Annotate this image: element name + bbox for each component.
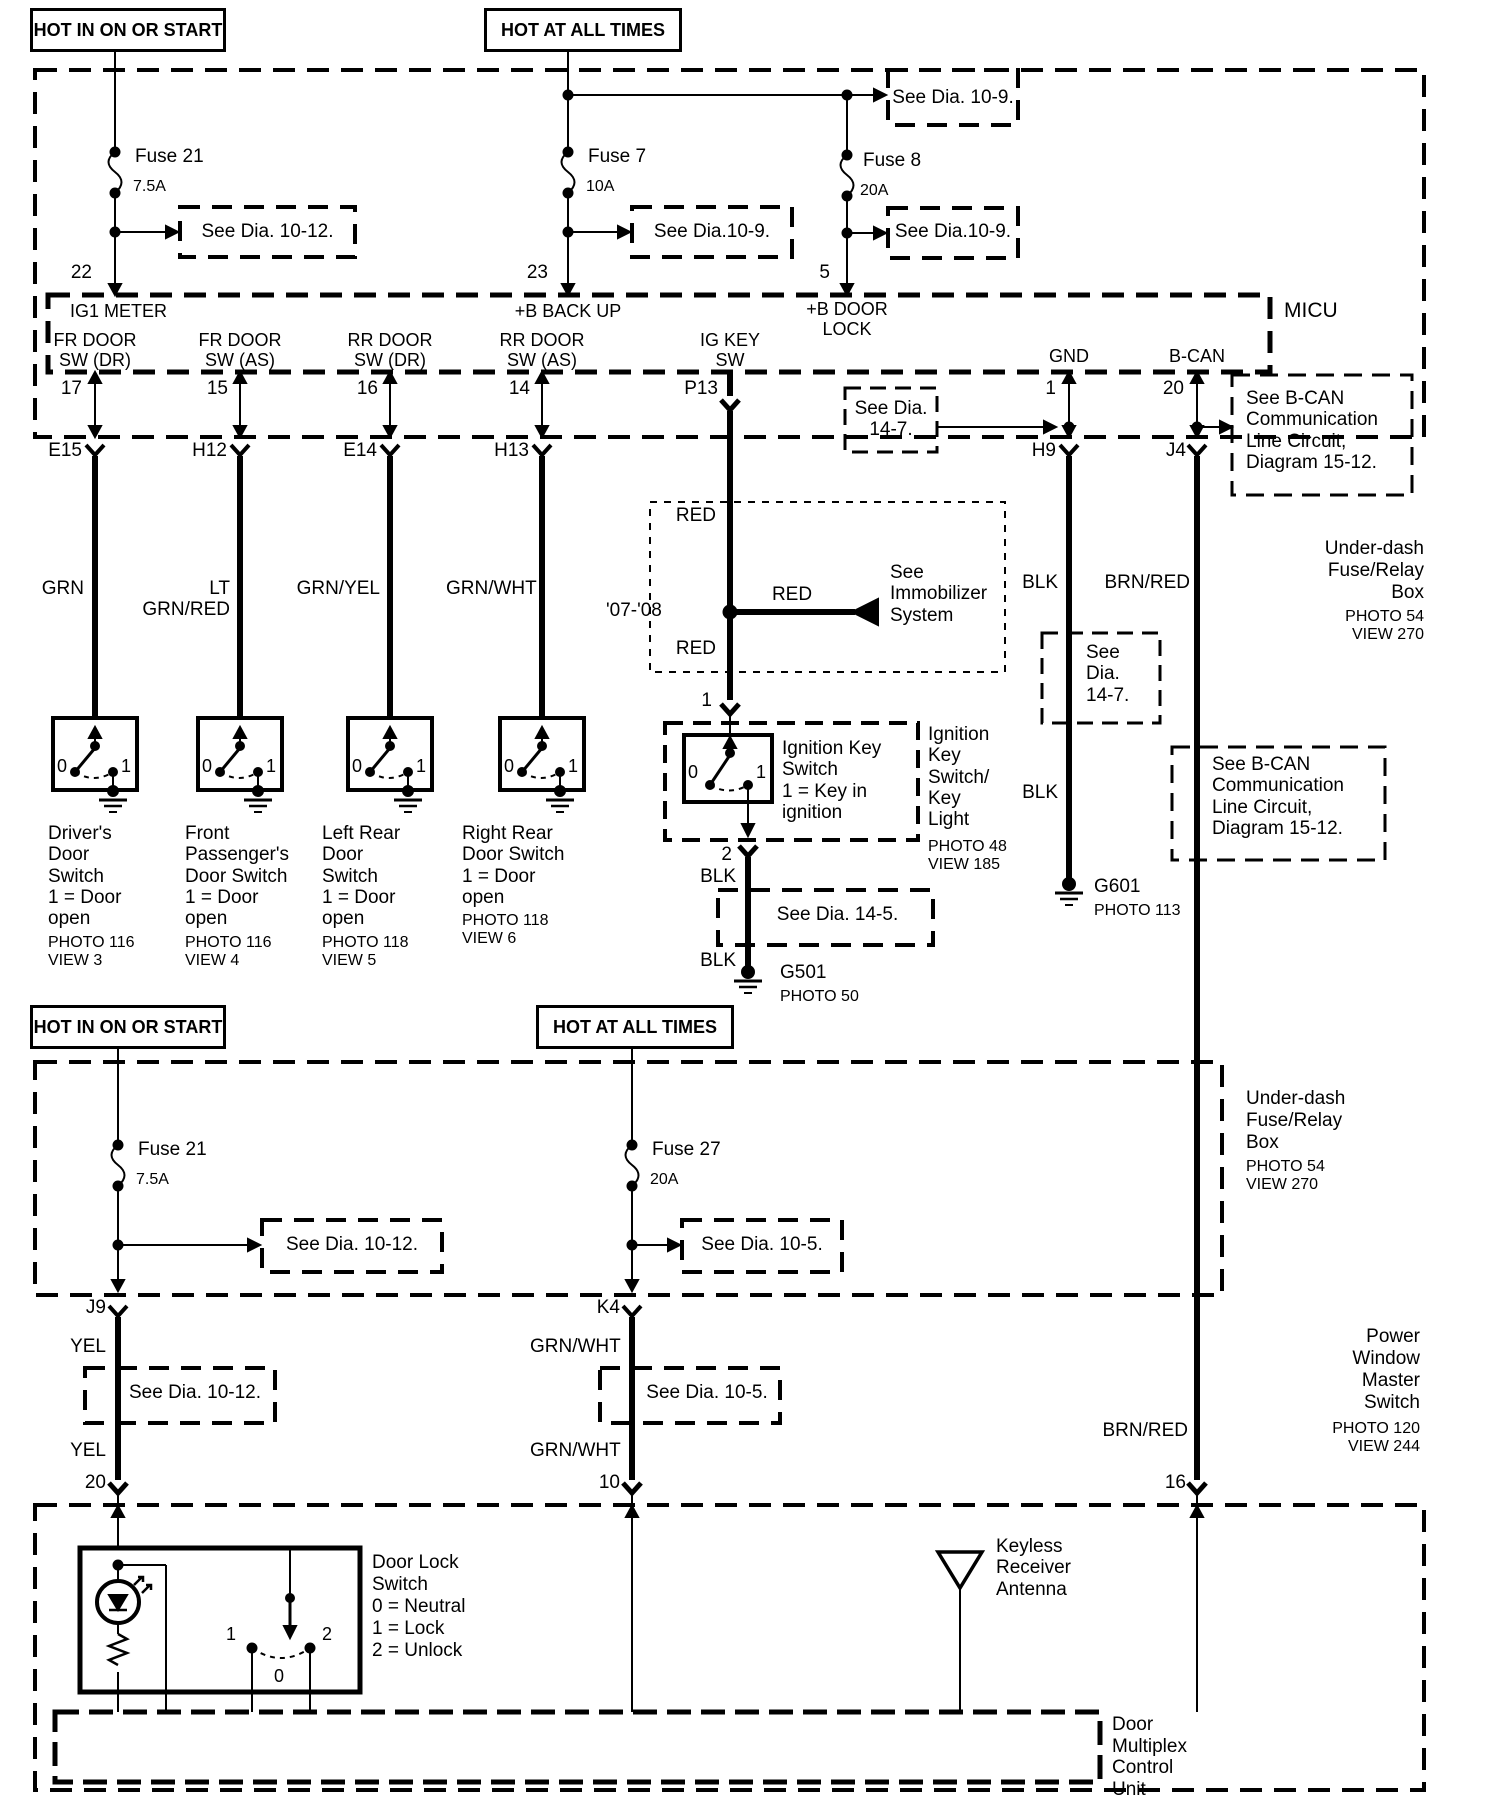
see-dia-10-12-ref: See Dia. 10-12. bbox=[180, 221, 355, 242]
see-dia-14-7-ref-top: See Dia. 14-7. bbox=[845, 398, 937, 441]
connector-k4: K4 bbox=[580, 1297, 620, 1318]
keyless-antenna-symbol bbox=[938, 1552, 982, 1712]
ignition-contact-1: 1 bbox=[756, 762, 766, 782]
wire-color-red-upper: RED bbox=[668, 505, 716, 526]
wire-color-red-horizontal: RED bbox=[752, 584, 832, 605]
connector-j4: J4 bbox=[1142, 440, 1186, 461]
underdash-fuse-relay-box-label-top: Under-dash Fuse/Relay Box bbox=[1224, 538, 1424, 604]
see-dia-14-7-ref-mid: See Dia. 14-7. bbox=[1086, 642, 1129, 706]
pin-16: 16 bbox=[1142, 1472, 1186, 1493]
connector-e15: E15 bbox=[38, 440, 82, 461]
wire-color-grn: GRN bbox=[28, 578, 84, 599]
connector-h9: H9 bbox=[1012, 440, 1056, 461]
pin-22: 22 bbox=[52, 262, 92, 283]
wire-color-grn-wht: GRN/WHT bbox=[446, 578, 532, 599]
fuse8-amps: 20A bbox=[860, 182, 888, 200]
ignition-key-switch-side-label: Ignition Key Switch/ Key Light bbox=[928, 724, 989, 830]
door-switch-wires bbox=[86, 372, 551, 718]
pin-10: 10 bbox=[580, 1472, 620, 1493]
wire-color-grnwht-lower: GRN/WHT bbox=[530, 1440, 620, 1461]
driver-door-switch-photo: PHOTO 116 VIEW 3 bbox=[48, 934, 135, 970]
underdash-fuse-relay-box-label-sec2: Under-dash Fuse/Relay Box bbox=[1246, 1088, 1345, 1154]
fuse8-label: Fuse 8 bbox=[863, 150, 921, 171]
see-dia-10-9-ref-mid: See Dia.10-9. bbox=[632, 221, 792, 242]
fuse7-amps: 10A bbox=[586, 178, 614, 196]
pin-p13: P13 bbox=[660, 378, 718, 399]
see-dia-10-9-ref-top: See Dia. 10-9. bbox=[888, 87, 1018, 108]
hot-at-all-times-box-top: HOT AT ALL TIMES bbox=[484, 8, 682, 52]
door-multiplex-box-outline bbox=[55, 1712, 1100, 1782]
see-dia-10-5-ref-low: See Dia. 10-5. bbox=[638, 1382, 776, 1403]
door-lock-contact-2: 2 bbox=[322, 1624, 332, 1644]
fuse21-amps: 7.5A bbox=[133, 178, 166, 196]
left-rear-door-switch-photo: PHOTO 118 VIEW 5 bbox=[322, 934, 409, 970]
ignition-pin-1: 1 bbox=[688, 690, 712, 711]
pin-15: 15 bbox=[184, 378, 228, 399]
underdash-photo-view-sec2: PHOTO 54 VIEW 270 bbox=[1246, 1158, 1325, 1194]
fuse27-circuit bbox=[626, 1043, 681, 1291]
power-window-master-switch-label: Power Window Master Switch bbox=[1220, 1326, 1420, 1413]
wire-color-blk-ign-upper: BLK bbox=[692, 866, 736, 887]
g501-photo: PHOTO 50 bbox=[780, 988, 859, 1006]
hot-in-on-or-start-box-top: HOT IN ON OR START bbox=[30, 8, 226, 52]
pin-1: 1 bbox=[1018, 378, 1056, 399]
right-rear-door-switch-label: Right Rear Door Switch 1 = Door open bbox=[462, 823, 564, 908]
wire-color-blk-ign-lower: BLK bbox=[692, 950, 736, 971]
wire-color-grn-yel: GRN/YEL bbox=[296, 578, 380, 599]
fr-pass-door-contact-1: 1 bbox=[266, 756, 276, 776]
see-immobilizer-ref: See Immobilizer System bbox=[890, 562, 987, 626]
rr-door-sw-dr-label: RR DOOR SW (DR) bbox=[320, 330, 460, 370]
hot-at-all-times-label-sec2: HOT AT ALL TIMES bbox=[553, 1017, 717, 1038]
year-range-label: '07-'08 bbox=[606, 600, 662, 621]
wire-color-lt-grn-red: LT GRN/RED bbox=[126, 578, 230, 621]
right-rear-door-contact-1: 1 bbox=[568, 756, 578, 776]
pin-20-sec2: 20 bbox=[66, 1472, 106, 1493]
see-dia-10-9-ref-fuse8: See Dia.10-9. bbox=[888, 221, 1018, 242]
pin-20: 20 bbox=[1136, 378, 1184, 399]
fuse7-label: Fuse 7 bbox=[588, 146, 646, 167]
fuse21-circuit-sec2 bbox=[112, 1043, 261, 1291]
wire-color-blk-h9-lower: BLK bbox=[1010, 782, 1058, 803]
wire-color-blk-h9-upper: BLK bbox=[1010, 572, 1058, 593]
door-lock-switch-label: Door Lock Switch 0 = Neutral 1 = Lock 2 … bbox=[372, 1552, 465, 1662]
wire-color-grnwht-upper: GRN/WHT bbox=[530, 1336, 620, 1357]
driver-door-contact-0: 0 bbox=[47, 756, 67, 776]
connector-j9: J9 bbox=[66, 1297, 106, 1318]
g601-label: G601 bbox=[1094, 876, 1140, 897]
fuse21-circuit-top bbox=[109, 46, 179, 295]
see-dia-10-12-ref-sec2: See Dia. 10-12. bbox=[262, 1234, 442, 1255]
left-rear-door-switch-label: Left Rear Door Switch 1 = Door open bbox=[322, 823, 400, 929]
front-passenger-door-switch-label: Front Passenger's Door Switch 1 = Door o… bbox=[185, 823, 289, 929]
g601-photo: PHOTO 113 bbox=[1094, 902, 1181, 920]
wire-color-yel-upper: YEL bbox=[60, 1336, 106, 1357]
wiring-diagram-page: HOT IN ON OR START HOT AT ALL TIMES Fuse… bbox=[0, 0, 1504, 1804]
ig1-meter-label: IG1 METER bbox=[70, 301, 167, 321]
pin-23: 23 bbox=[508, 262, 548, 283]
door-lock-contact-1: 1 bbox=[216, 1624, 236, 1644]
gnd-label: GND bbox=[1039, 346, 1099, 366]
underdash-box-outline-mid bbox=[35, 1062, 1222, 1295]
rr-door-sw-as-label: RR DOOR SW (AS) bbox=[472, 330, 612, 370]
fuse21-sec2-amps: 7.5A bbox=[136, 1171, 169, 1189]
b-can-label: B-CAN bbox=[1162, 346, 1232, 366]
wire-color-brn-red-low: BRN/RED bbox=[1102, 1420, 1188, 1441]
ig-key-sw-label: IG KEY SW bbox=[670, 330, 790, 370]
fuse27-amps: 20A bbox=[650, 1171, 678, 1189]
pin-14: 14 bbox=[486, 378, 530, 399]
door-lock-contact-0: 0 bbox=[274, 1666, 284, 1686]
right-rear-door-switch-photo: PHOTO 118 VIEW 6 bbox=[462, 912, 549, 948]
front-passenger-door-switch-photo: PHOTO 116 VIEW 4 bbox=[185, 934, 272, 970]
j9-wire bbox=[109, 1306, 127, 1548]
wire-color-red-lower: RED bbox=[668, 638, 716, 659]
fuse7-circuit bbox=[562, 46, 631, 295]
fuse21-sec2-label: Fuse 21 bbox=[138, 1139, 207, 1160]
see-bcan-ref-1: See B-CAN Communication Line Circuit, Di… bbox=[1246, 388, 1378, 473]
door-multiplex-control-unit-label: Door Multiplex Control Unit bbox=[1112, 1714, 1187, 1801]
ignition-key-switch-note: Ignition Key Switch 1 = Key in ignition bbox=[782, 738, 881, 823]
hot-in-on-or-start-label-top: HOT IN ON OR START bbox=[34, 20, 223, 41]
power-window-photo-view: PHOTO 120 VIEW 244 bbox=[1220, 1420, 1420, 1456]
hot-at-all-times-box-sec2: HOT AT ALL TIMES bbox=[536, 1005, 734, 1049]
fuse27-label: Fuse 27 bbox=[652, 1139, 721, 1160]
left-rear-door-contact-1: 1 bbox=[416, 756, 426, 776]
fuse21-label: Fuse 21 bbox=[135, 146, 204, 167]
ignition-contact-0: 0 bbox=[678, 762, 698, 782]
pin-5: 5 bbox=[806, 262, 830, 283]
wire-color-yel-lower: YEL bbox=[60, 1440, 106, 1461]
pin-16: 16 bbox=[334, 378, 378, 399]
ignition-photo-view: PHOTO 48 VIEW 185 bbox=[928, 838, 1007, 874]
connector-h13: H13 bbox=[485, 440, 529, 461]
pin-17: 17 bbox=[38, 378, 82, 399]
fr-door-sw-dr-label: FR DOOR SW (DR) bbox=[25, 330, 165, 370]
fr-door-sw-as-label: FR DOOR SW (AS) bbox=[170, 330, 310, 370]
hot-at-all-times-label-top: HOT AT ALL TIMES bbox=[501, 20, 665, 41]
see-dia-14-5-ref: See Dia. 14-5. bbox=[745, 904, 930, 925]
keyless-receiver-antenna-label: Keyless Receiver Antenna bbox=[996, 1536, 1071, 1600]
fr-pass-door-contact-0: 0 bbox=[192, 756, 212, 776]
driver-door-switch-label: Driver's Door Switch 1 = Door open bbox=[48, 823, 121, 929]
underdash-photo-view-top: PHOTO 54 VIEW 270 bbox=[1224, 608, 1424, 644]
b-backup-label: +B BACK UP bbox=[488, 301, 648, 321]
hot-in-on-or-start-label-sec2: HOT IN ON OR START bbox=[34, 1017, 223, 1038]
right-rear-door-contact-0: 0 bbox=[494, 756, 514, 776]
connector-h12: H12 bbox=[183, 440, 227, 461]
driver-door-contact-1: 1 bbox=[121, 756, 131, 776]
see-dia-10-5-ref-sec2: See Dia. 10-5. bbox=[682, 1234, 842, 1255]
see-bcan-ref-2: See B-CAN Communication Line Circuit, Di… bbox=[1212, 754, 1344, 839]
hot-in-on-or-start-box-sec2: HOT IN ON OR START bbox=[30, 1005, 226, 1049]
see-dia-10-12-ref-low: See Dia. 10-12. bbox=[120, 1382, 270, 1403]
b-doorlock-label: +B DOOR LOCK bbox=[787, 299, 907, 339]
micu-label: MICU bbox=[1284, 299, 1338, 323]
connector-e14: E14 bbox=[333, 440, 377, 461]
wire-color-brn-red-top: BRN/RED bbox=[1104, 572, 1190, 593]
g501-label: G501 bbox=[780, 962, 826, 983]
ignition-pin-2: 2 bbox=[706, 844, 732, 865]
left-rear-door-contact-0: 0 bbox=[342, 756, 362, 776]
